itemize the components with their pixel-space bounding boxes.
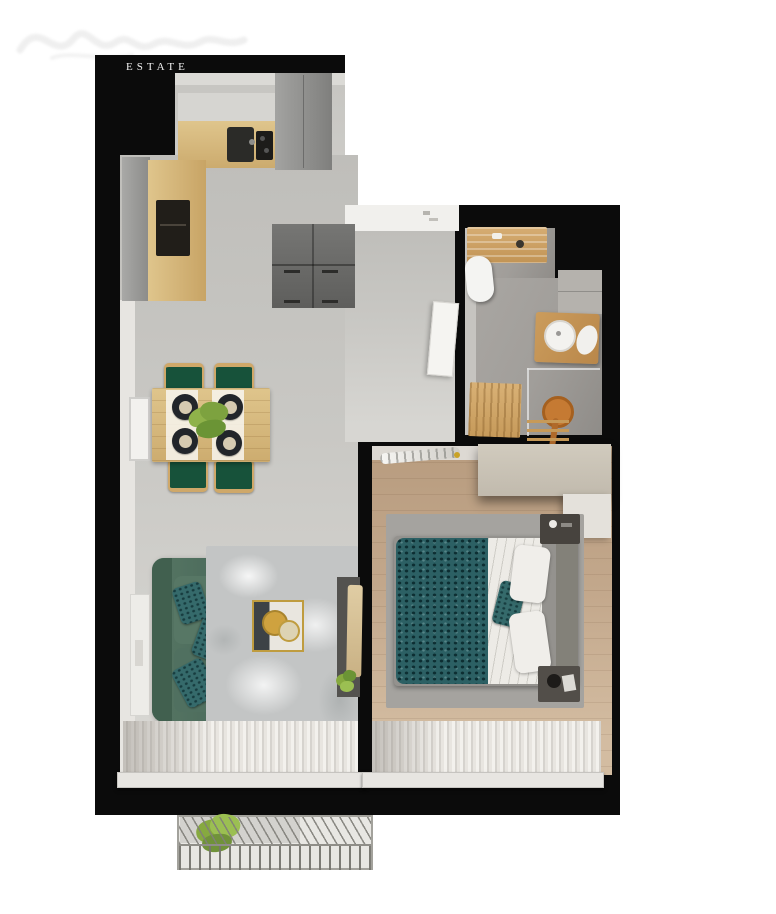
cabinet-handle (284, 300, 300, 303)
oven-shelf-line (160, 224, 186, 226)
wall-mirror (129, 397, 150, 461)
gold-tray (278, 620, 300, 642)
bed-pillow (509, 544, 552, 604)
basin-drain-icon (556, 331, 561, 336)
curtain-shadow (372, 721, 442, 775)
entry-door-hardware (423, 211, 430, 215)
nightstand (540, 514, 580, 544)
nightstand-book (562, 674, 577, 692)
bed-duvet (396, 538, 490, 684)
bedroom-window-sill (362, 772, 604, 788)
shelf-jar (516, 240, 524, 248)
sofa-backrest (152, 558, 172, 722)
table-lamp (547, 674, 561, 688)
cabinet-handle (322, 270, 338, 273)
dining-chair (214, 459, 254, 493)
dining-chair (168, 458, 208, 492)
towel-ladder (527, 420, 569, 446)
nightstand-item (561, 523, 572, 527)
bath-mat (468, 382, 522, 438)
kitchen-backsplash (178, 93, 275, 121)
cooktop (256, 131, 273, 160)
cabinet-seam (558, 291, 602, 292)
cabinet-handle (284, 270, 300, 273)
brand-watermark: ESTATE (126, 61, 189, 73)
shelf-towel (492, 233, 502, 239)
curtain-shadow (123, 721, 213, 775)
nightstand-cup (549, 520, 557, 528)
wash-basin (544, 320, 576, 352)
floor-plant (334, 668, 358, 694)
light-detail (454, 452, 460, 458)
left-cabinet-side (122, 157, 150, 301)
entry-top-wall (345, 205, 459, 231)
cabinet-handle (322, 300, 338, 303)
cabinet-seam (303, 75, 304, 168)
bath-cabinet (558, 270, 602, 314)
wardrobe (478, 444, 611, 496)
burner-icon (260, 136, 265, 141)
entry-door-hardware (429, 218, 438, 221)
shower-glass (527, 368, 600, 370)
faucet-icon (249, 139, 255, 145)
table-centerpiece-plant (184, 400, 232, 446)
living-window-sill (117, 772, 366, 788)
tv-unit (346, 585, 363, 677)
balcony-railing-bars (179, 844, 371, 870)
oven-niche (156, 200, 190, 256)
headboard (556, 538, 578, 686)
burner-icon (264, 148, 269, 153)
wall-panel-detail (135, 640, 143, 666)
cabinet-seam (312, 224, 314, 308)
floorplan-render: ESTATE (0, 0, 776, 914)
balcony-railing-top (179, 817, 371, 844)
